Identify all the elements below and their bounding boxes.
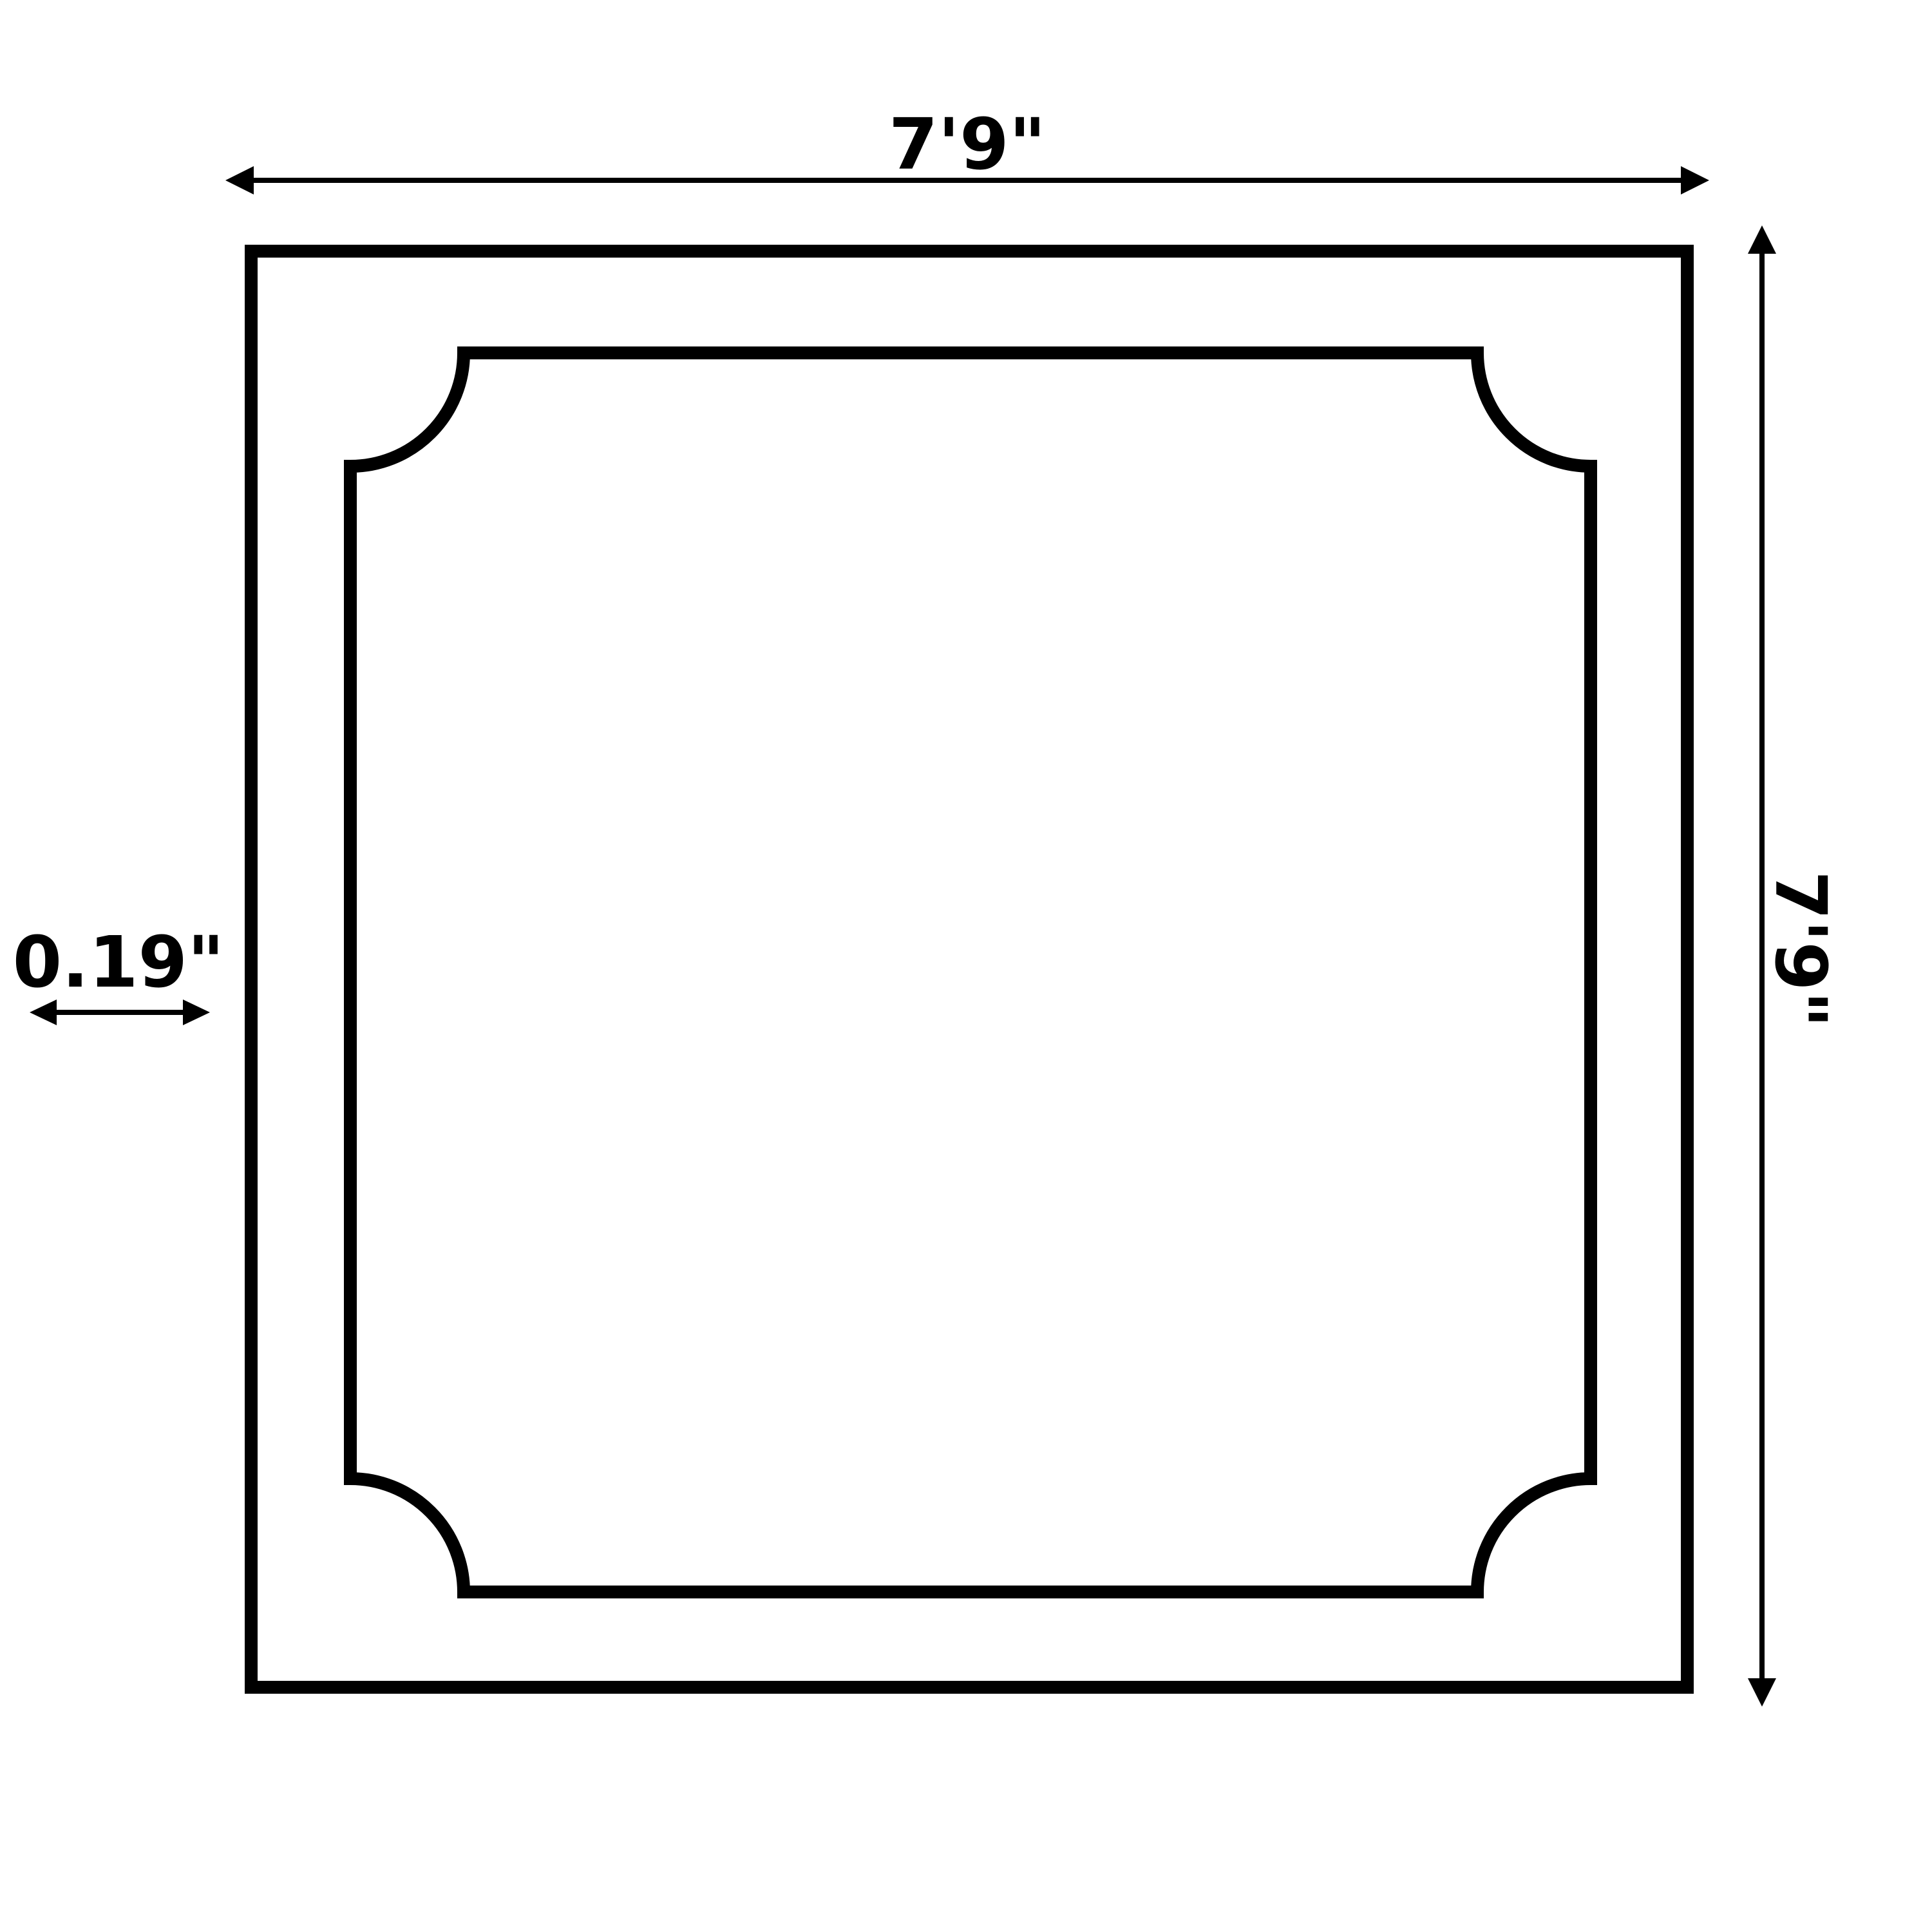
right-dimension-label: 7'9" bbox=[1759, 871, 1842, 1028]
thickness-label: 0.19" bbox=[13, 921, 225, 1003]
dimension-diagram: 7'9" 7'9" 0.19" bbox=[0, 0, 1932, 1932]
top-dimension-label: 7'9" bbox=[889, 103, 1046, 185]
diagram-background bbox=[0, 0, 1932, 1932]
diagram-canvas: 7'9" 7'9" 0.19" bbox=[0, 0, 1932, 1932]
